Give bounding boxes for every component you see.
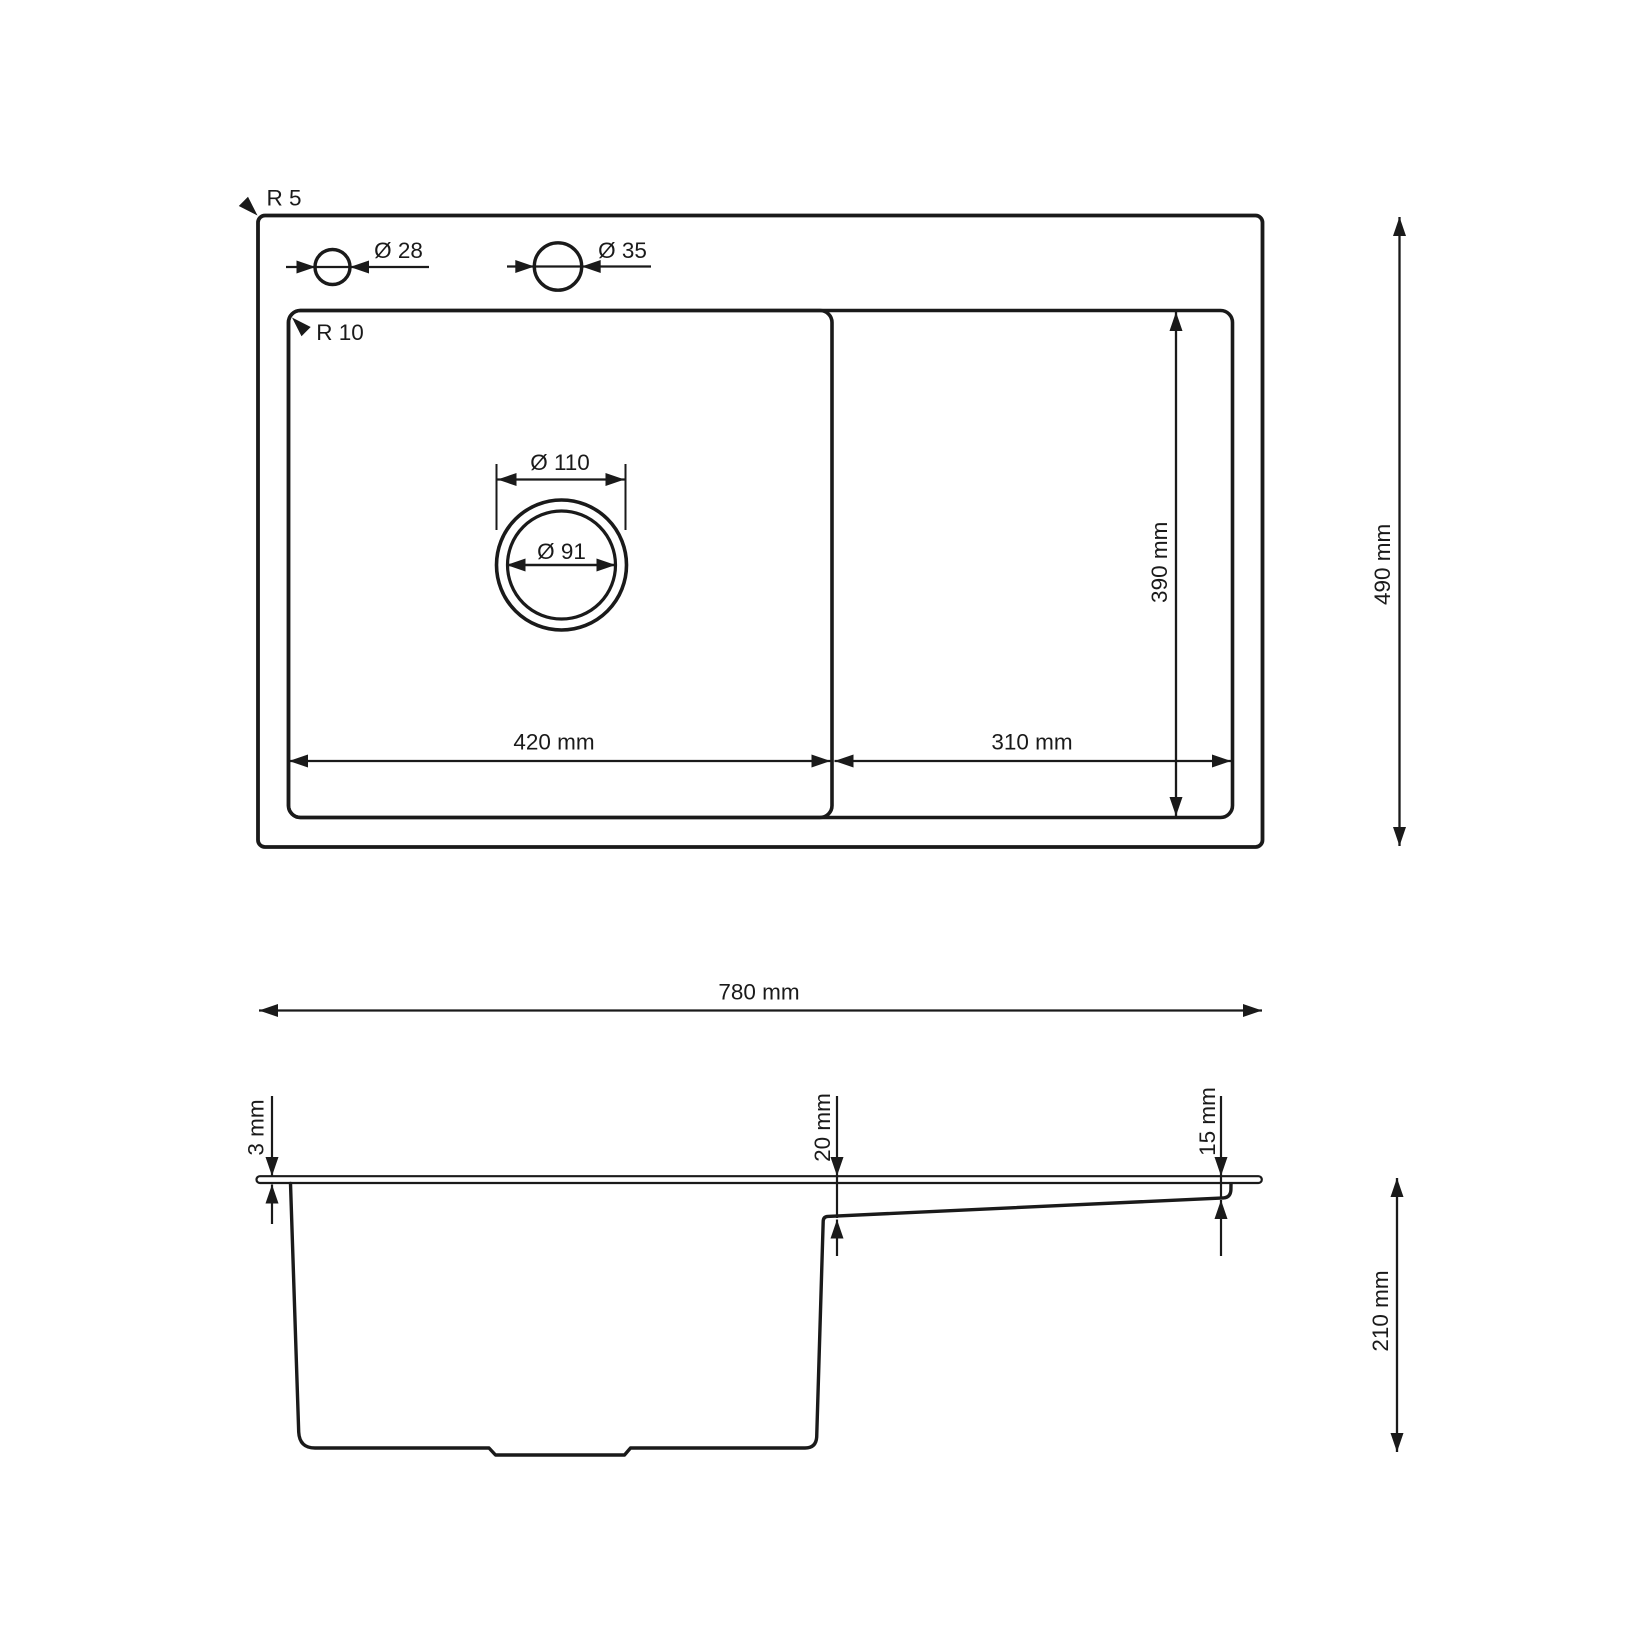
- svg-text:390 mm: 390 mm: [1147, 522, 1172, 603]
- svg-text:Ø 91: Ø 91: [537, 539, 586, 564]
- svg-text:Ø 110: Ø 110: [530, 450, 590, 475]
- svg-text:15 mm: 15 mm: [1195, 1087, 1220, 1156]
- svg-text:420 mm: 420 mm: [513, 730, 594, 755]
- svg-text:20 mm: 20 mm: [810, 1093, 835, 1162]
- svg-text:Ø 28: Ø 28: [374, 238, 423, 263]
- svg-text:3 mm: 3 mm: [243, 1099, 268, 1155]
- svg-text:Ø 35: Ø 35: [598, 238, 647, 263]
- svg-text:310 mm: 310 mm: [991, 730, 1072, 755]
- svg-text:490 mm: 490 mm: [1370, 524, 1395, 605]
- svg-text:R 5: R 5: [266, 186, 301, 211]
- svg-text:R 10: R 10: [316, 320, 364, 345]
- svg-text:210 mm: 210 mm: [1368, 1270, 1393, 1351]
- svg-text:780 mm: 780 mm: [718, 980, 799, 1005]
